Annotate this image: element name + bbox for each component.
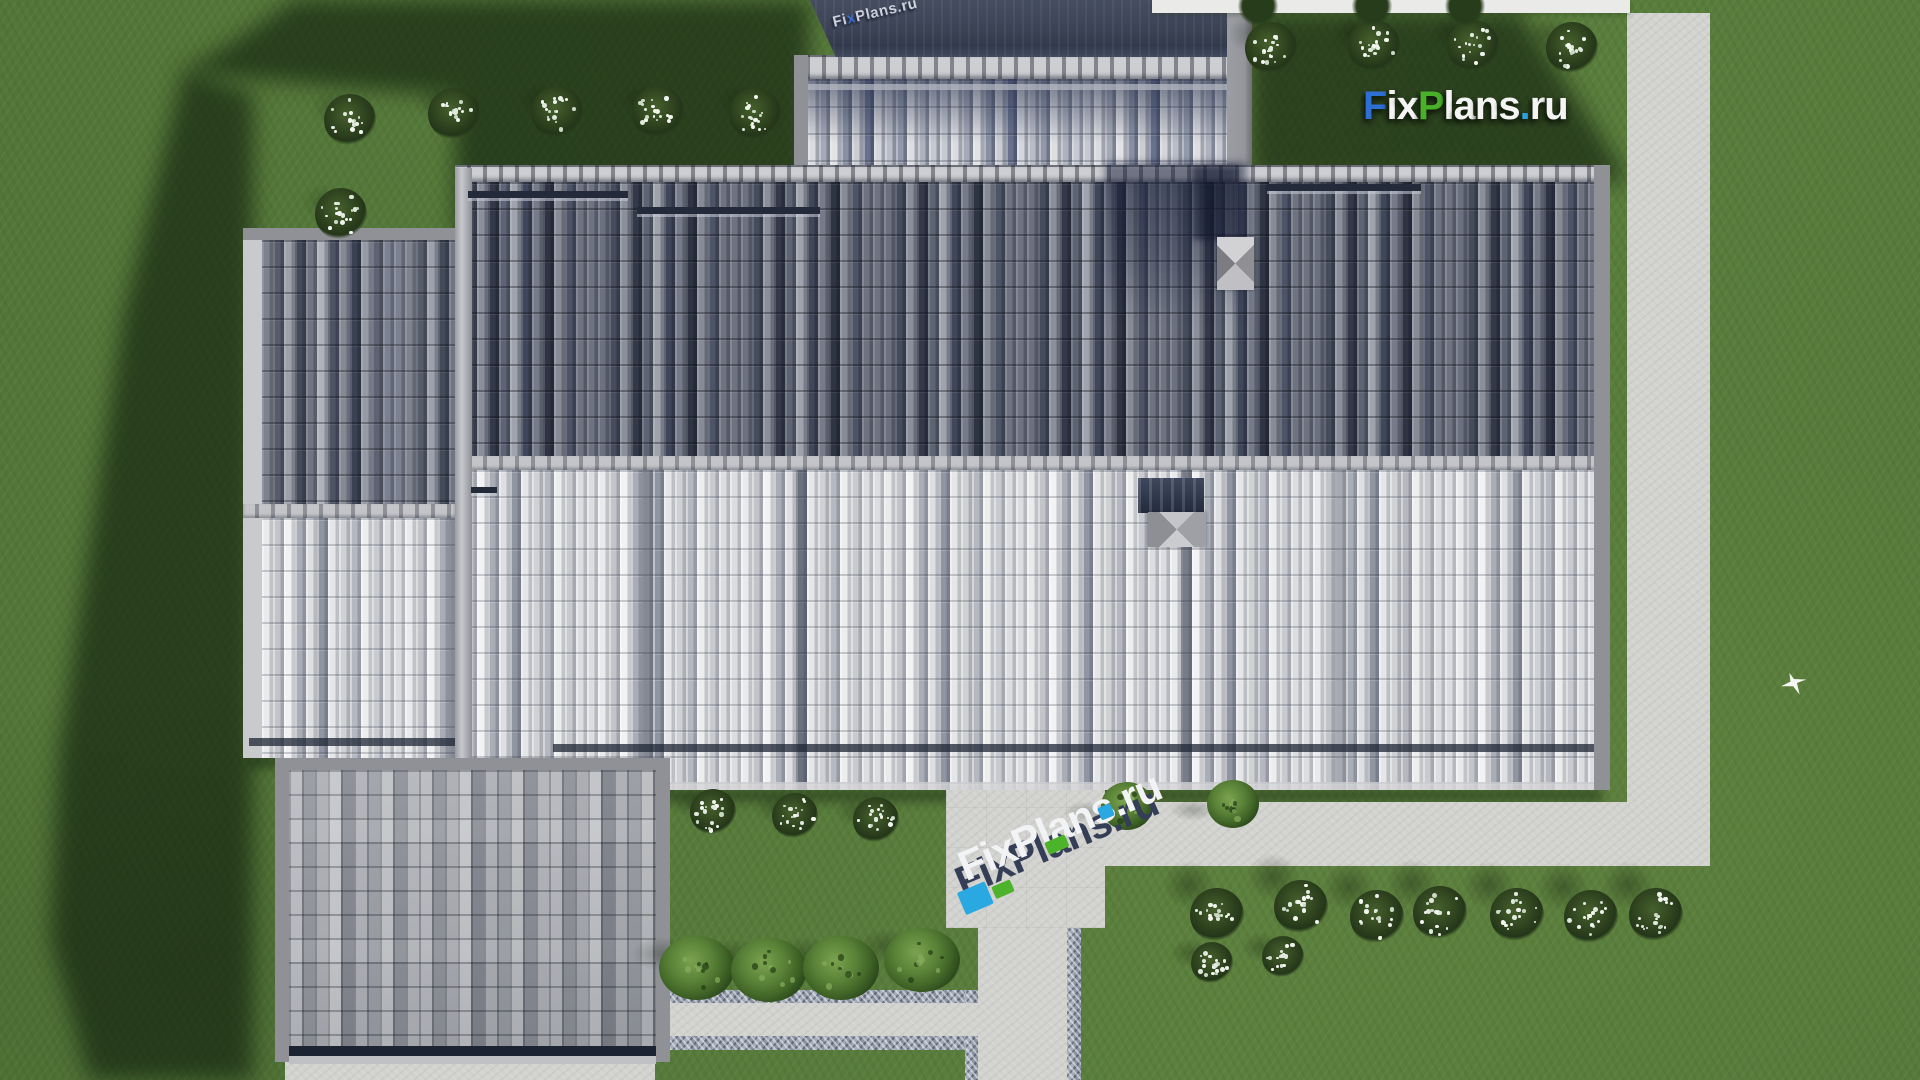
flower-dot bbox=[341, 213, 345, 217]
flower-dot bbox=[459, 100, 463, 104]
aerial-roof-plan-render: FixPlans.ru FixPlans.ru FixPlans.ru FixP… bbox=[0, 0, 1920, 1080]
flower-dot bbox=[667, 119, 671, 123]
flower-dot bbox=[1429, 898, 1434, 903]
white-flower-bush bbox=[772, 793, 818, 839]
leaf-dot bbox=[936, 968, 941, 973]
chimney-cap-lower bbox=[1148, 512, 1206, 547]
flower-dot bbox=[1206, 909, 1209, 912]
flower-dot bbox=[754, 95, 758, 99]
logo-letter: l bbox=[1444, 84, 1454, 128]
flower-dot bbox=[1501, 920, 1505, 924]
leaf-dot bbox=[752, 963, 759, 970]
flower-dot bbox=[1306, 890, 1311, 895]
bottom-path bbox=[670, 1003, 978, 1036]
leaf-dot bbox=[1225, 806, 1229, 810]
flower-dot bbox=[1290, 943, 1295, 948]
garage-roof-right-fascia bbox=[656, 758, 670, 1062]
flower-dot bbox=[361, 122, 363, 124]
flower-dot bbox=[1430, 909, 1433, 912]
flower-dot bbox=[1563, 64, 1567, 68]
white-flower-bush bbox=[1447, 20, 1499, 72]
flower-dot bbox=[1285, 944, 1289, 948]
flower-dot bbox=[349, 218, 351, 220]
flower-dot bbox=[1371, 917, 1374, 920]
flower-dot bbox=[1215, 913, 1220, 918]
flower-dot bbox=[1204, 973, 1208, 977]
flower-dot bbox=[334, 220, 337, 223]
green-bush bbox=[803, 936, 879, 1000]
flower-dot bbox=[888, 822, 893, 827]
walk-gravel-right bbox=[1067, 928, 1081, 1080]
flower-dot bbox=[1468, 43, 1471, 46]
flower-dot bbox=[1271, 968, 1273, 970]
flower-dot bbox=[703, 809, 707, 813]
leaf-dot bbox=[1232, 809, 1236, 813]
green-bush bbox=[884, 928, 960, 992]
white-flower-bush bbox=[1274, 880, 1328, 934]
flower-dot bbox=[1276, 44, 1278, 46]
flower-dot bbox=[1269, 55, 1273, 59]
leaf-dot bbox=[683, 957, 688, 962]
flower-dot bbox=[352, 123, 356, 127]
flower-dot bbox=[1253, 57, 1258, 62]
flower-dot bbox=[1230, 917, 1235, 922]
flower-dot bbox=[799, 827, 802, 830]
flower-dot bbox=[857, 819, 860, 822]
flower-dot bbox=[1510, 923, 1513, 926]
flower-dot bbox=[801, 809, 803, 811]
flower-dot bbox=[1391, 51, 1395, 55]
flower-dot bbox=[358, 116, 360, 118]
flower-dot bbox=[752, 110, 755, 113]
flower-dot bbox=[869, 813, 872, 816]
flower-dot bbox=[1220, 914, 1223, 917]
flower-dot bbox=[461, 110, 464, 113]
flower-dot bbox=[1567, 30, 1569, 32]
flower-dot bbox=[782, 815, 784, 817]
flower-dot bbox=[1577, 925, 1581, 929]
flower-dot bbox=[800, 821, 804, 825]
flower-dot bbox=[359, 130, 363, 134]
flower-dot bbox=[1438, 911, 1442, 915]
flower-dot bbox=[764, 128, 766, 130]
flower-dot bbox=[1638, 917, 1642, 921]
flower-dot bbox=[334, 130, 337, 133]
white-flower-bush bbox=[315, 188, 367, 240]
flower-dot bbox=[348, 98, 352, 102]
flower-dot bbox=[705, 806, 707, 808]
flower-dot bbox=[1253, 40, 1257, 44]
flower-dot bbox=[1514, 892, 1517, 895]
flower-dot bbox=[1215, 973, 1218, 976]
flower-dot bbox=[1670, 902, 1673, 905]
flower-dot bbox=[1507, 928, 1509, 930]
flower-dot bbox=[553, 97, 556, 100]
white-flower-bush bbox=[1348, 20, 1400, 72]
flower-dot bbox=[1567, 46, 1570, 49]
flower-dot bbox=[700, 806, 704, 810]
flower-dot bbox=[1280, 964, 1284, 968]
flower-dot bbox=[882, 810, 884, 812]
flower-dot bbox=[1476, 36, 1479, 39]
garage-roof-tiles bbox=[289, 770, 656, 1062]
flower-dot bbox=[1310, 897, 1314, 901]
flower-dot bbox=[1361, 46, 1364, 49]
flower-dot bbox=[325, 215, 328, 218]
logo-letter: n bbox=[1475, 84, 1498, 128]
flower-dot bbox=[880, 804, 883, 807]
flower-dot bbox=[1195, 909, 1197, 911]
flower-dot bbox=[1202, 964, 1206, 968]
leaf-dot bbox=[701, 969, 705, 973]
flower-dot bbox=[1388, 923, 1392, 927]
flower-dot bbox=[1304, 884, 1307, 887]
flower-dot bbox=[553, 100, 557, 104]
flower-dot bbox=[1600, 910, 1605, 915]
flower-dot bbox=[1506, 909, 1511, 914]
flower-dot bbox=[1373, 52, 1376, 55]
flower-dot bbox=[1438, 933, 1441, 936]
leaf-dot bbox=[857, 972, 861, 976]
snow-guard-2 bbox=[637, 207, 820, 214]
leaf-dot bbox=[831, 962, 834, 965]
flower-dot bbox=[542, 103, 547, 108]
white-flower-bush bbox=[1564, 890, 1618, 944]
flower-dot bbox=[640, 120, 645, 125]
flower-dot bbox=[1473, 44, 1475, 46]
flower-dot bbox=[786, 820, 790, 824]
flower-dot bbox=[349, 231, 353, 235]
flower-dot bbox=[547, 118, 550, 121]
flower-dot bbox=[1435, 925, 1439, 929]
main-roof-mid-ridge bbox=[455, 456, 1602, 470]
leaf-dot bbox=[770, 967, 776, 973]
flower-dot bbox=[355, 122, 359, 126]
flower-dot bbox=[1374, 909, 1377, 912]
flower-dot bbox=[1220, 967, 1225, 972]
leaf-dot bbox=[826, 983, 832, 989]
leaf-dot bbox=[838, 967, 841, 970]
flower-dot bbox=[1516, 908, 1521, 913]
dormer-tiles bbox=[808, 79, 1227, 165]
leaf-dot bbox=[696, 967, 701, 972]
leaf-dot bbox=[1222, 803, 1225, 806]
flower-dot bbox=[721, 807, 723, 809]
flower-dot bbox=[1315, 920, 1319, 924]
flower-dot bbox=[758, 128, 761, 131]
flower-dot bbox=[572, 107, 576, 111]
flower-dot bbox=[1390, 918, 1393, 921]
flower-dot bbox=[1518, 915, 1521, 918]
flower-dot bbox=[1359, 899, 1363, 903]
flower-dot bbox=[1390, 907, 1395, 912]
flower-dot bbox=[1283, 55, 1286, 58]
flower-dot bbox=[788, 807, 792, 811]
flower-dot bbox=[1470, 33, 1473, 36]
flower-dot bbox=[1276, 965, 1279, 968]
flower-dot bbox=[335, 212, 338, 215]
leaf-dot bbox=[780, 982, 785, 987]
flower-dot bbox=[1515, 899, 1517, 901]
dormer-seam bbox=[808, 84, 1227, 90]
flower-dot bbox=[1446, 927, 1448, 929]
flower-dot bbox=[1534, 921, 1536, 923]
flower-dot bbox=[1365, 904, 1369, 908]
house-shadow-left bbox=[40, 60, 255, 1080]
logo-letter: a bbox=[1454, 84, 1475, 128]
flower-dot bbox=[351, 209, 354, 212]
flower-dot bbox=[1643, 928, 1646, 931]
flower-dot bbox=[700, 801, 704, 805]
flower-dot bbox=[792, 825, 794, 827]
flower-dot bbox=[561, 99, 564, 102]
flower-dot bbox=[1429, 929, 1433, 933]
flower-dot bbox=[1213, 963, 1218, 968]
white-flower-bush bbox=[1245, 22, 1297, 74]
flower-dot bbox=[1420, 920, 1424, 924]
flower-dot bbox=[1658, 926, 1661, 929]
flower-dot bbox=[565, 98, 568, 101]
flower-dot bbox=[1386, 31, 1389, 34]
flower-dot bbox=[645, 115, 649, 119]
flower-dot bbox=[656, 119, 658, 121]
flower-dot bbox=[1636, 924, 1639, 927]
flower-dot bbox=[1359, 920, 1362, 923]
leaf-dot bbox=[845, 971, 852, 978]
flower-dot bbox=[449, 112, 453, 116]
flower-dot bbox=[870, 824, 873, 827]
garage-roof-left-fascia bbox=[275, 758, 289, 1062]
flower-dot bbox=[696, 820, 699, 823]
green-bush bbox=[659, 936, 735, 1000]
flower-dot bbox=[1264, 39, 1267, 42]
flower-dot bbox=[1512, 915, 1517, 920]
flower-dot bbox=[1367, 55, 1369, 57]
flower-dot bbox=[454, 115, 458, 119]
flower-dot bbox=[1664, 926, 1666, 928]
flower-dot bbox=[1658, 931, 1660, 933]
snow-guard-1 bbox=[468, 191, 628, 198]
leaf-dot bbox=[759, 975, 766, 982]
flower-dot bbox=[659, 115, 662, 118]
flower-dot bbox=[336, 202, 340, 206]
flower-dot bbox=[1303, 904, 1305, 906]
white-flower-bush bbox=[1546, 22, 1598, 74]
flower-dot bbox=[552, 115, 557, 120]
green-bush bbox=[731, 938, 807, 1002]
flower-dot bbox=[1296, 917, 1298, 919]
flower-dot bbox=[877, 808, 880, 811]
white-flower-bush bbox=[1629, 888, 1683, 942]
right-walkway bbox=[1627, 13, 1710, 866]
flower-dot bbox=[349, 111, 353, 115]
flower-dot bbox=[1302, 908, 1307, 913]
flower-dot bbox=[453, 110, 458, 115]
logo-letter: i bbox=[1386, 84, 1396, 128]
garage-roof-top-fascia bbox=[275, 758, 670, 770]
flower-dot bbox=[1203, 951, 1208, 956]
flower-dot bbox=[868, 805, 871, 808]
flower-dot bbox=[1268, 47, 1273, 52]
flower-dot bbox=[1377, 916, 1381, 920]
flower-dot bbox=[1280, 954, 1285, 959]
flower-dot bbox=[349, 195, 353, 199]
flower-dot bbox=[1288, 902, 1292, 906]
flower-dot bbox=[668, 115, 673, 120]
flower-dot bbox=[331, 126, 334, 129]
logo-letter: x bbox=[1397, 84, 1418, 128]
flower-dot bbox=[751, 125, 755, 129]
flower-dot bbox=[343, 112, 347, 116]
flower-dot bbox=[1368, 44, 1370, 46]
leaf-dot bbox=[897, 967, 902, 972]
flower-dot bbox=[1372, 44, 1376, 48]
flying-bird bbox=[1778, 669, 1810, 700]
logo-letter: u bbox=[1544, 84, 1567, 128]
flower-dot bbox=[1202, 959, 1206, 963]
leaf-dot bbox=[917, 942, 920, 945]
flower-dot bbox=[879, 813, 882, 816]
snow-guard-3 bbox=[1267, 184, 1421, 191]
main-roof-dark-slope bbox=[455, 182, 1602, 456]
flower-dot bbox=[1215, 969, 1219, 973]
flower-dot bbox=[644, 108, 646, 110]
main-roof-right-fascia bbox=[1594, 165, 1610, 790]
flower-dot bbox=[1271, 41, 1274, 44]
flower-dot bbox=[555, 121, 557, 123]
leaf-dot bbox=[838, 954, 845, 961]
leaf-dot bbox=[908, 977, 914, 983]
flower-dot bbox=[887, 817, 889, 819]
flower-dot bbox=[710, 821, 714, 825]
flower-dot bbox=[1559, 52, 1561, 54]
flower-dot bbox=[1225, 966, 1229, 970]
leaf-dot bbox=[1234, 816, 1240, 822]
flower-dot bbox=[1655, 918, 1658, 921]
flower-dot bbox=[705, 827, 707, 829]
flower-dot bbox=[350, 127, 355, 132]
flower-dot bbox=[1265, 60, 1270, 65]
chimney-cap-upper bbox=[1217, 237, 1254, 290]
flower-dot bbox=[1511, 899, 1515, 903]
flower-dot bbox=[1375, 894, 1379, 898]
flower-dot bbox=[1462, 58, 1465, 61]
left-wing-gutter bbox=[249, 738, 455, 746]
flower-dot bbox=[1593, 907, 1598, 912]
white-flower-bush bbox=[1190, 888, 1244, 942]
leaf-dot bbox=[697, 962, 701, 966]
flower-dot bbox=[655, 109, 660, 114]
flower-dot bbox=[1496, 910, 1500, 914]
flower-dot bbox=[644, 118, 647, 121]
white-flower-bush bbox=[690, 789, 736, 835]
flower-dot bbox=[664, 96, 669, 101]
main-roof-light-slope bbox=[455, 470, 1602, 790]
green-bush bbox=[1207, 780, 1259, 828]
flower-dot bbox=[1458, 46, 1461, 49]
logo-letter: F bbox=[1363, 84, 1386, 128]
leaf-dot bbox=[1233, 801, 1237, 805]
leaf-dot bbox=[788, 960, 791, 963]
roof-window-panel bbox=[1138, 478, 1204, 513]
central-walk bbox=[978, 928, 1067, 1080]
white-flower-bush bbox=[1413, 886, 1467, 940]
flower-dot bbox=[1302, 896, 1307, 901]
flower-dot bbox=[1208, 903, 1213, 908]
flower-dot bbox=[446, 105, 448, 107]
flower-dot bbox=[651, 99, 653, 101]
flower-dot bbox=[1447, 911, 1451, 915]
main-roof-gutter bbox=[553, 744, 1594, 752]
flower-dot bbox=[1600, 901, 1602, 903]
flower-dot bbox=[1560, 36, 1564, 40]
flower-dot bbox=[1462, 54, 1465, 57]
flower-dot bbox=[757, 120, 760, 123]
flower-dot bbox=[1274, 61, 1276, 63]
flower-dot bbox=[1198, 969, 1203, 974]
flower-dot bbox=[1658, 897, 1663, 902]
leaf-dot bbox=[701, 985, 706, 990]
flower-dot bbox=[1588, 914, 1592, 918]
flower-dot bbox=[469, 108, 473, 112]
logo-letter: P bbox=[1418, 84, 1444, 128]
flower-dot bbox=[1573, 908, 1576, 911]
flower-dot bbox=[876, 828, 879, 831]
garage-roof-gutter bbox=[289, 1046, 656, 1056]
flower-dot bbox=[345, 218, 348, 221]
flower-dot bbox=[653, 115, 656, 118]
flower-dot bbox=[1273, 35, 1278, 40]
garage-roof-eave-row bbox=[289, 1056, 656, 1064]
main-roof-top-ridge bbox=[455, 165, 1602, 182]
flower-dot bbox=[811, 817, 815, 821]
dormer-ridge bbox=[794, 55, 1245, 79]
flower-dot bbox=[1597, 920, 1600, 923]
left-wing-light-slope bbox=[262, 518, 455, 758]
white-flower-bush bbox=[632, 86, 684, 138]
flower-dot bbox=[1208, 955, 1212, 959]
flower-dot bbox=[1372, 26, 1375, 29]
white-flower-bush bbox=[324, 94, 376, 146]
flower-dot bbox=[1455, 897, 1458, 900]
flower-dot bbox=[651, 105, 655, 109]
flower-dot bbox=[1213, 904, 1217, 908]
flower-dot bbox=[720, 798, 723, 801]
flower-dot bbox=[747, 104, 751, 108]
leaf-dot bbox=[916, 959, 923, 966]
flower-dot bbox=[1454, 38, 1456, 40]
leaf-dot bbox=[790, 977, 795, 982]
flower-dot bbox=[1559, 59, 1562, 62]
flower-dot bbox=[1286, 909, 1289, 912]
flower-dot bbox=[711, 805, 716, 810]
bottom-path-gravel-bottom bbox=[670, 1036, 965, 1050]
logo-letter: s bbox=[1498, 84, 1519, 128]
flower-dot bbox=[1485, 29, 1489, 33]
flower-dot bbox=[1223, 959, 1226, 962]
flower-dot bbox=[1480, 52, 1484, 56]
flower-dot bbox=[1571, 50, 1575, 54]
flower-dot bbox=[716, 825, 719, 828]
flower-dot bbox=[795, 807, 797, 809]
roof-valley-divider bbox=[455, 168, 472, 790]
flower-dot bbox=[802, 798, 805, 801]
flower-dot bbox=[1211, 972, 1214, 975]
leaf-dot bbox=[767, 950, 770, 953]
flower-dot bbox=[1221, 903, 1223, 905]
chimney-shadow-streak bbox=[1193, 166, 1237, 240]
flower-dot bbox=[1478, 44, 1483, 49]
